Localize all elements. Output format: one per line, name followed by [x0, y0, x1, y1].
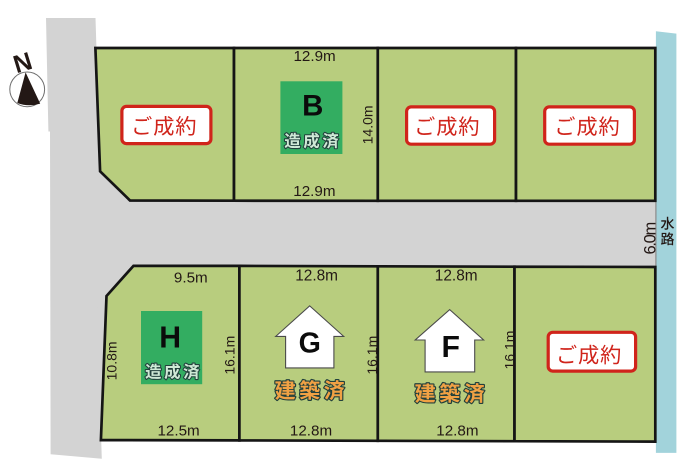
svg-text:14.0m: 14.0m: [360, 105, 376, 144]
svg-text:12.8m: 12.8m: [290, 423, 332, 440]
svg-text:12.8m: 12.8m: [295, 268, 338, 285]
svg-text:12.9m: 12.9m: [293, 183, 335, 200]
svg-text:12.8m: 12.8m: [435, 268, 478, 285]
svg-text:6.0m: 6.0m: [641, 223, 659, 255]
svg-text:10.8m: 10.8m: [104, 341, 120, 380]
svg-text:B: B: [302, 89, 323, 122]
svg-text:G: G: [299, 328, 321, 360]
svg-text:9.5m: 9.5m: [174, 269, 208, 286]
svg-text:12.8m: 12.8m: [436, 423, 478, 440]
svg-text:12.9m: 12.9m: [293, 48, 335, 65]
svg-text:H: H: [159, 321, 181, 354]
svg-text:16.1m: 16.1m: [222, 336, 238, 375]
svg-text:F: F: [441, 331, 459, 364]
svg-text:16.1m: 16.1m: [501, 331, 517, 370]
svg-text:12.5m: 12.5m: [157, 423, 199, 440]
svg-text:16.1m: 16.1m: [364, 336, 380, 375]
